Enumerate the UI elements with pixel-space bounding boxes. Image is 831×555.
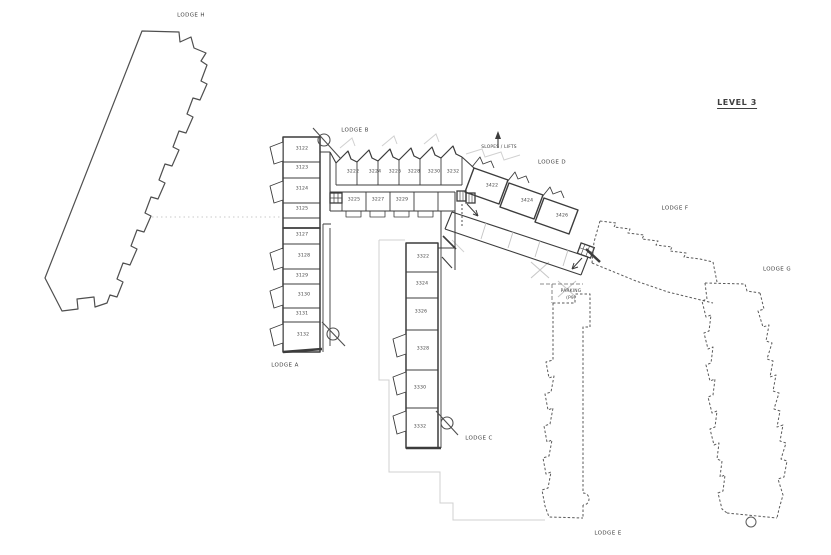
lodge-a-label: LODGE A (271, 363, 298, 369)
room-label: 3326 (415, 311, 428, 316)
room-label: 3330 (414, 387, 427, 392)
room-label: 3131 (296, 313, 309, 318)
room-label: 3128 (298, 255, 311, 260)
room-label: 3225 (348, 199, 361, 204)
room-label: 3226 (389, 171, 402, 176)
lodge-g-label: LODGE G (763, 267, 791, 273)
room-label: 3129 (296, 275, 309, 280)
lift-icon (330, 193, 342, 203)
parking-label: PARKING (561, 290, 582, 294)
level-title: LEVEL 3 (717, 99, 757, 109)
room-label: 3232 (447, 171, 460, 176)
plan-linework (0, 0, 831, 555)
room-label: 3228 (408, 171, 421, 176)
room-label: 3123 (296, 167, 309, 172)
lodge-e-label: LODGE E (594, 531, 621, 537)
lodge-f-label: LODGE F (662, 206, 689, 212)
circle-slash-icon (436, 411, 458, 435)
room-label: 3230 (428, 171, 441, 176)
room-label: 3122 (296, 148, 309, 153)
lift-arrow (572, 258, 582, 269)
room-label: 3424 (521, 200, 534, 205)
room-label: 3426 (556, 215, 569, 220)
floor-plan: LEVEL 3 LODGE H LODGE B LODGE D LODGE F … (0, 0, 831, 555)
room-label: 3328 (417, 348, 430, 353)
lodge-d-outline (445, 157, 600, 275)
circle-slash-icon (313, 128, 341, 159)
lodge-h-outline (45, 31, 207, 311)
room-label: 3332 (414, 426, 427, 431)
lodge-d-label: LODGE D (538, 160, 566, 166)
lift-icon (457, 191, 478, 216)
room-label: 3227 (372, 199, 385, 204)
room-label: 3324 (416, 283, 429, 288)
lodge-f-outline (592, 221, 717, 303)
lodge-h-label: LODGE H (177, 13, 205, 19)
room-label: 3224 (369, 171, 382, 176)
parking-level-label: (P9) (566, 297, 576, 301)
room-label: 3125 (296, 208, 309, 213)
lodge-g-outline (702, 283, 787, 518)
room-label: 3222 (347, 171, 360, 176)
circle-slash-icon (322, 322, 345, 346)
room-label: 3422 (486, 185, 499, 190)
room-label: 3124 (296, 188, 309, 193)
lodge-e-outline (542, 294, 590, 518)
room-label: 3229 (396, 199, 409, 204)
room-label: 3132 (297, 334, 310, 339)
room-label: 3130 (298, 294, 311, 299)
lodge-b-label: LODGE B (341, 128, 369, 134)
lodge-g-turret (746, 517, 756, 527)
room-label: 3322 (417, 256, 430, 261)
slopes-lifts-label: SLOPES / LIFTS (481, 146, 516, 150)
room-label: 3127 (296, 234, 309, 239)
lodge-b-outline (270, 137, 474, 270)
lodge-c-label: LODGE C (465, 436, 493, 442)
